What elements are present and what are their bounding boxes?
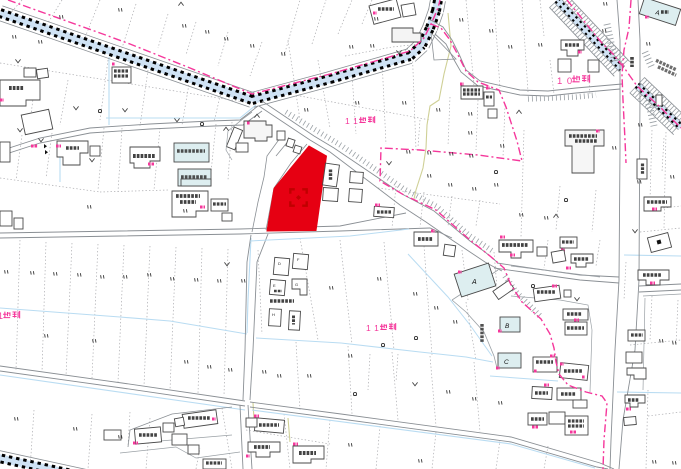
svg-text:A: A xyxy=(471,279,477,286)
svg-text:1 1: 1 1 xyxy=(366,323,379,333)
svg-text:1 0: 1 0 xyxy=(557,76,573,87)
svg-text:1: 1 xyxy=(0,311,3,321)
svg-text:E: E xyxy=(273,283,276,288)
svg-text:1 1: 1 1 xyxy=(345,116,358,126)
svg-text:G: G xyxy=(295,282,298,287)
svg-text:D: D xyxy=(278,261,281,266)
svg-text:C: C xyxy=(504,359,509,366)
svg-text:B: B xyxy=(505,323,510,330)
svg-text:H: H xyxy=(272,312,275,317)
